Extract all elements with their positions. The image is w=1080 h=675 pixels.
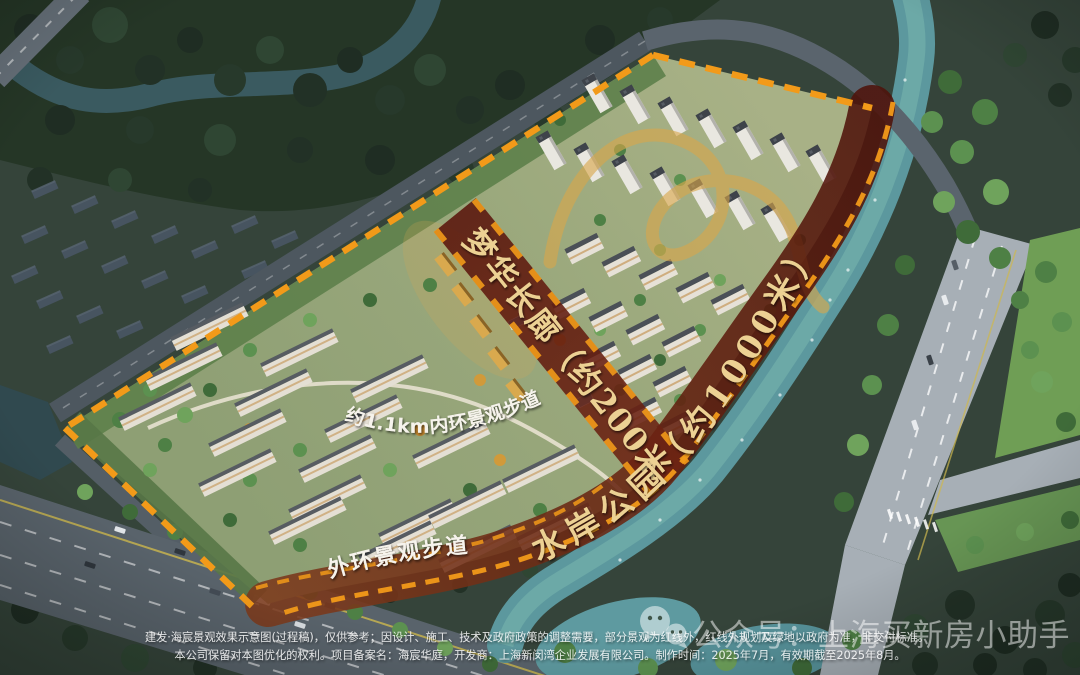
masterplan-rendering: 梦华长廊（约200米） 水岸公园（约1000米） 约1.1km内环景观步道 外环… xyxy=(0,0,1080,675)
aerial-masterplan-screenshot: 梦华长廊（约200米） 水岸公园（约1000米） 约1.1km内环景观步道 外环… xyxy=(0,0,1080,675)
watermark-text: 公众号：上海买新房小助手 xyxy=(692,618,1070,654)
